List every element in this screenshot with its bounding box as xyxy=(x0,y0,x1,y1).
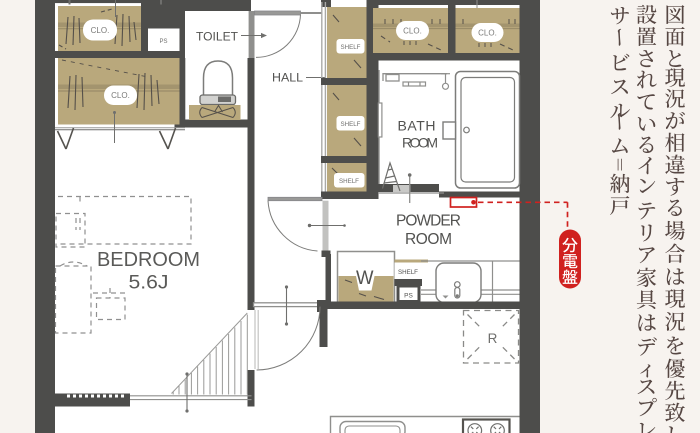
svg-text:PS: PS xyxy=(404,293,413,300)
svg-text:W: W xyxy=(356,268,374,289)
svg-text:ROOM: ROOM xyxy=(405,231,452,248)
svg-text:CLO.: CLO. xyxy=(111,91,130,100)
svg-text:CLO.: CLO. xyxy=(403,27,422,36)
svg-text:PS: PS xyxy=(159,39,167,45)
svg-text:SHELF: SHELF xyxy=(341,44,361,51)
svg-text:BATH: BATH xyxy=(398,118,436,134)
svg-text:SHELF: SHELF xyxy=(341,121,361,128)
svg-text:ROOM: ROOM xyxy=(402,135,438,151)
svg-text:BEDROOM: BEDROOM xyxy=(97,248,200,271)
svg-text:CLO.: CLO. xyxy=(91,26,110,35)
svg-text:TOILET: TOILET xyxy=(196,30,239,44)
svg-text:HALL: HALL xyxy=(272,71,303,85)
svg-text:5.6J: 5.6J xyxy=(129,273,169,294)
svg-text:SHELF: SHELF xyxy=(339,178,359,185)
svg-text:POWDER: POWDER xyxy=(396,213,461,230)
svg-text:SHELF: SHELF xyxy=(398,269,418,276)
svg-text:CLO.: CLO. xyxy=(478,29,497,38)
svg-text:R: R xyxy=(488,331,498,346)
